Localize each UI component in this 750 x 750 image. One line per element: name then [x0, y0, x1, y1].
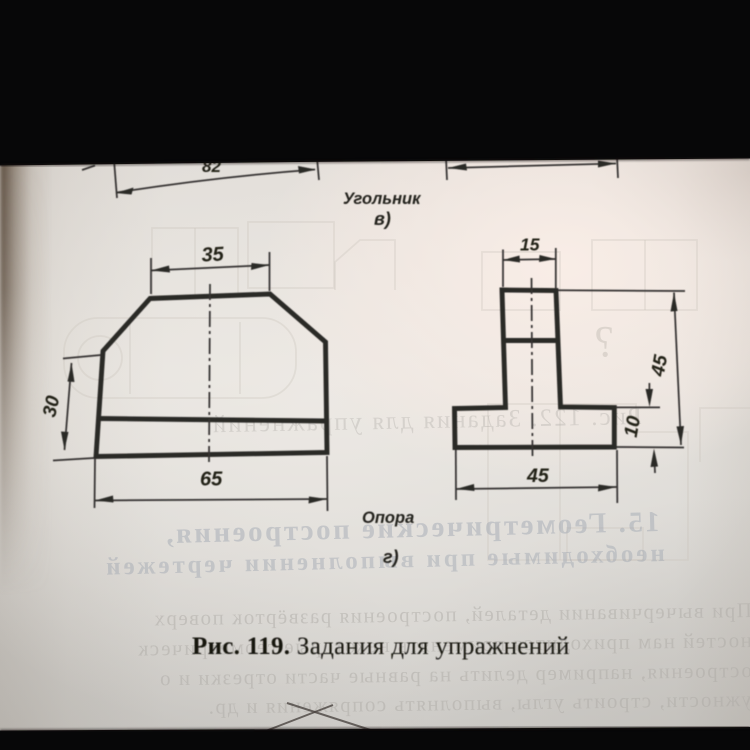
svg-text:30: 30	[39, 394, 64, 419]
svg-text:35: 35	[201, 243, 225, 266]
svg-text:45: 45	[526, 465, 550, 487]
svg-text:в): в)	[374, 209, 391, 229]
svg-text:10: 10	[621, 414, 645, 439]
svg-text:г): г)	[383, 547, 399, 567]
svg-text:Рис. 119. Задания для упражнен: Рис. 119. Задания для упражнений	[192, 633, 570, 660]
svg-text:Угольник: Угольник	[343, 190, 422, 208]
svg-text:?: ?	[594, 317, 614, 366]
svg-text:При вычерчивании деталей, пост: При вычерчивании деталей, построения раз…	[153, 598, 750, 630]
svg-text:65: 65	[200, 469, 223, 491]
svg-text:Опора: Опора	[362, 509, 414, 527]
svg-text:15: 15	[520, 235, 540, 255]
svg-text:45: 45	[648, 353, 673, 379]
svg-text:остроения, например делить на: остроения, например делить на равные час…	[158, 658, 750, 690]
